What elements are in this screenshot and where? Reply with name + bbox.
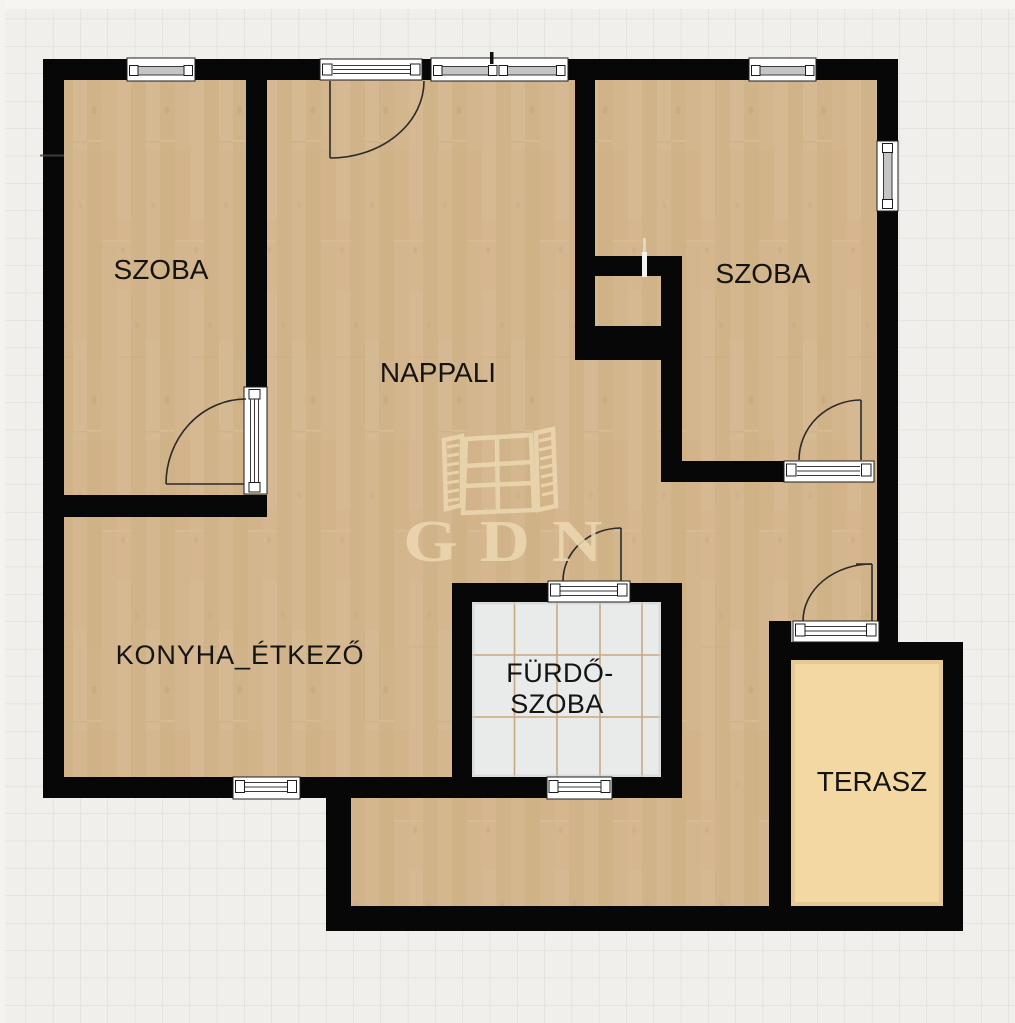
svg-text:NAPPALI: NAPPALI xyxy=(380,357,496,388)
svg-text:SZOBA: SZOBA xyxy=(114,254,209,285)
svg-text:TERASZ: TERASZ xyxy=(817,766,927,797)
svg-text:G D N: G D N xyxy=(403,509,604,574)
svg-text:KONYHA_ÉTKEZŐ: KONYHA_ÉTKEZŐ xyxy=(116,639,365,670)
svg-text:FÜRDŐ-: FÜRDŐ- xyxy=(506,657,613,688)
svg-text:SZOBA: SZOBA xyxy=(510,689,604,719)
svg-text:SZOBA: SZOBA xyxy=(716,258,811,289)
